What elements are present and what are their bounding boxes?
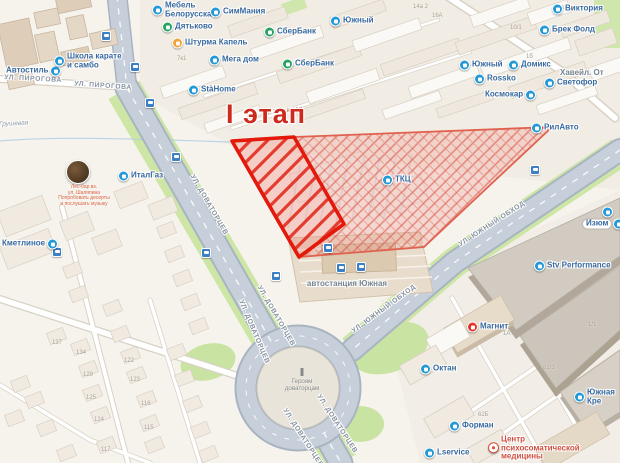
poi-icon: [508, 60, 519, 71]
poi-label: автостанция Южная: [307, 280, 387, 289]
poi-icon: [330, 16, 341, 27]
photo-poi[interactable]: [66, 160, 90, 184]
poi-label: СберБанк: [295, 60, 334, 69]
poi-label: Школа карате и самбо: [67, 53, 122, 70]
poi-icon: [474, 74, 485, 85]
map-poi[interactable]: Домикс: [508, 60, 551, 71]
poi-label: Штурма Капель: [185, 39, 247, 48]
poi-icon: [209, 55, 220, 66]
map-poi[interactable]: Южная Кре: [574, 389, 620, 406]
bus-stop-icon[interactable]: [145, 98, 155, 108]
poi-icon: [172, 38, 183, 49]
poi-label: Светофор: [557, 79, 597, 88]
poi-label: Мега дом: [222, 56, 259, 65]
map-poi[interactable]: Мега дом: [209, 55, 259, 66]
map-poi[interactable]: Форман: [449, 421, 494, 432]
map-poi[interactable]: автостанция Южная: [307, 280, 387, 289]
poi-icon: [210, 7, 221, 18]
poi-icon: [613, 219, 620, 230]
map-poi[interactable]: [602, 207, 613, 218]
map-poi[interactable]: Южный: [330, 16, 374, 27]
map-poi[interactable]: Октан: [420, 364, 456, 375]
bus-stop-icon[interactable]: [101, 31, 111, 41]
poi-icon: [539, 25, 550, 36]
bus-stop-icon[interactable]: [336, 263, 346, 273]
poi-label: Октан: [433, 365, 456, 374]
poi-label: ИталГаз: [131, 172, 163, 181]
map-poi[interactable]: Stv Performance: [534, 261, 611, 272]
poi-icon: [47, 239, 58, 250]
poi-label: СберБанк: [277, 28, 316, 37]
poi-icon: [282, 59, 293, 70]
map-poi[interactable]: Виктория: [552, 4, 603, 15]
poi-label: Lservice: [437, 449, 469, 458]
map-poi[interactable]: Школа карате и самбо: [54, 53, 122, 70]
poi-label: Мебель Белорусская: [165, 2, 216, 19]
map-poi[interactable]: Космокар: [485, 90, 536, 101]
map-poi[interactable]: Южный: [459, 60, 503, 71]
bus-stop-icon[interactable]: [171, 152, 181, 162]
poi-icon: [420, 364, 431, 375]
poi-label: РилАвто: [544, 124, 579, 133]
poi-icon: [264, 27, 275, 38]
poi-label: Брек Фолд: [552, 26, 595, 35]
poi-icon: [574, 392, 585, 403]
poi-icon: [525, 90, 536, 101]
map-poi[interactable]: РилАвто: [531, 123, 579, 134]
poi-label: Космокар: [485, 91, 523, 100]
poi-label: Домикс: [521, 61, 551, 70]
poi-icon: [602, 207, 613, 218]
poi-label: Южный: [343, 17, 374, 26]
map-poi[interactable]: Хавейл. От: [560, 69, 604, 78]
poi-icon: [152, 5, 163, 16]
poi-label: Южная Кре: [587, 389, 620, 406]
map-poi[interactable]: Центр психосоматической медицины: [488, 435, 580, 461]
poi-label: Изюм: [583, 220, 611, 229]
poi-icon: [534, 261, 545, 272]
map-poi[interactable]: Кметлиное: [2, 239, 58, 250]
poi-label: Южный: [472, 61, 503, 70]
map-poi[interactable]: Lservice: [424, 448, 469, 459]
poi-label: ТКЦ: [395, 176, 411, 185]
poi-icon: [467, 322, 478, 333]
map-poi[interactable]: Светофор: [544, 78, 597, 89]
poi-icon: [459, 60, 470, 71]
poi-icon: [449, 421, 460, 432]
bus-stop-icon[interactable]: [271, 271, 281, 281]
poi-icon: [118, 171, 129, 182]
bus-stop-icon[interactable]: [201, 248, 211, 258]
map-poi[interactable]: StàHome: [188, 85, 236, 96]
map-poi[interactable]: Брек Фолд: [539, 25, 595, 36]
poi-icon: [162, 22, 173, 33]
poi-label: Хавейл. От: [560, 69, 604, 78]
bus-stop-icon[interactable]: [356, 262, 366, 272]
poi-icon: [488, 443, 499, 454]
map-poi[interactable]: СимМания: [210, 7, 265, 18]
poi-label: Автостиль: [6, 67, 48, 76]
map-poi[interactable]: Магнит: [467, 322, 508, 333]
poi-icon: [382, 175, 393, 186]
poi-label: Rossko: [487, 75, 516, 84]
poi-icon: [552, 4, 563, 15]
poi-icon: [188, 85, 199, 96]
poi-label: Виктория: [565, 5, 603, 14]
map-poi[interactable]: СберБанк: [282, 59, 334, 70]
poi-label: Форман: [462, 422, 494, 431]
bus-stop-icon[interactable]: [130, 62, 140, 72]
map-poi[interactable]: СберБанк: [264, 27, 316, 38]
map-poi[interactable]: Rossko: [474, 74, 516, 85]
bus-stop-icon[interactable]: [530, 165, 540, 175]
poi-label: Stv Performance: [547, 262, 611, 271]
map-poi[interactable]: ИталГаз: [118, 171, 163, 182]
poi-icon: [531, 123, 542, 134]
poi-icon: [424, 448, 435, 459]
map-poi[interactable]: Штурма Капель: [172, 38, 247, 49]
map-poi[interactable]: ТКЦ: [382, 175, 411, 186]
map-poi[interactable]: Изюм: [583, 219, 620, 230]
poi-label: Дятьково: [175, 23, 213, 32]
map-view: I этап Мебель БелорусскаяСимМанияДятьков…: [0, 0, 620, 463]
poi-label: Центр психосоматической медицины: [501, 435, 580, 461]
poi-label: StàHome: [201, 86, 236, 95]
map-poi[interactable]: Дятьково: [162, 22, 213, 33]
poi-label: Кметлиное: [2, 240, 45, 249]
poi-label: Магнит: [480, 323, 508, 332]
map-poi[interactable]: Мебель Белорусская: [152, 2, 216, 19]
poi-icon: [54, 56, 65, 67]
poi-label: СимМания: [223, 8, 265, 17]
bus-stop-icon[interactable]: [323, 243, 333, 253]
poi-icon: [544, 78, 555, 89]
